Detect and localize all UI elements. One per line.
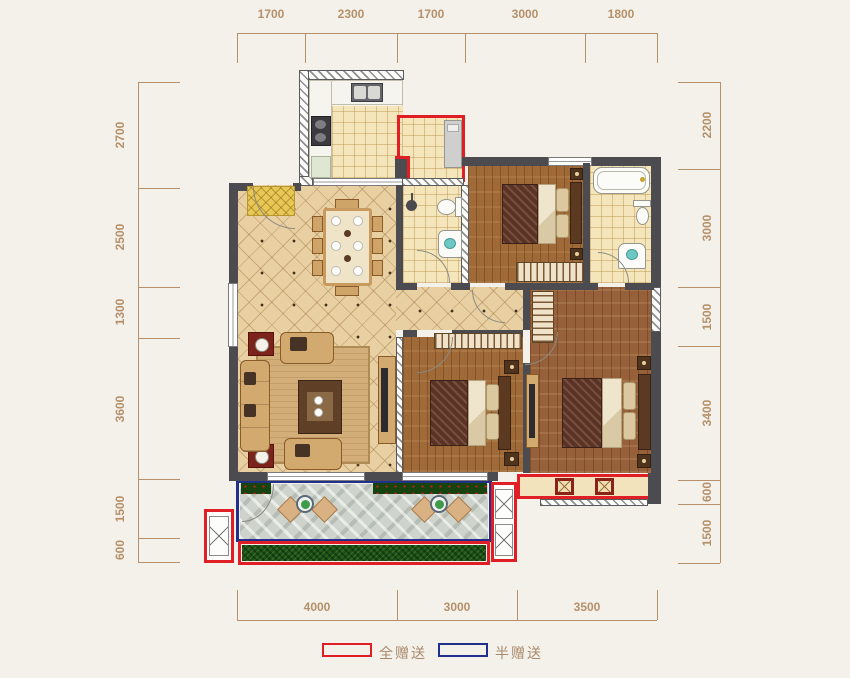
bay-window-sill	[540, 499, 648, 506]
bottom-wall-1	[229, 472, 267, 481]
dim-label: 1300	[113, 282, 127, 342]
gift-area-wall	[402, 178, 464, 186]
kitchen-slider-door	[313, 178, 403, 186]
planter-plant	[435, 500, 444, 509]
dim-tick	[138, 538, 180, 539]
balcony-slider-2	[402, 472, 488, 481]
bed-headboard	[570, 182, 582, 244]
sofa-pillow	[244, 372, 256, 385]
shower-hose	[411, 193, 413, 203]
kitchen-tile	[332, 106, 403, 178]
sink-basin	[368, 86, 380, 99]
toilet-icon	[437, 199, 456, 215]
corner-post	[648, 473, 661, 504]
ac-platform-icon	[495, 524, 513, 556]
plate	[331, 266, 341, 276]
dim-tick	[397, 33, 398, 63]
armchair-cushion	[290, 337, 307, 351]
stove-burner	[315, 133, 326, 142]
washing-machine-panel	[447, 124, 459, 132]
legend-label-full-gift: 全赠送	[379, 643, 427, 663]
dim-label: 1800	[591, 7, 651, 21]
bed-pillow	[556, 188, 569, 212]
dim-label: 2200	[700, 95, 714, 155]
dining-chair	[335, 286, 359, 296]
dim-tick	[657, 590, 658, 620]
dim-label: 1500	[700, 503, 714, 563]
dim-tick	[657, 33, 658, 63]
cutting-board	[311, 156, 331, 178]
basin-bowl	[444, 238, 456, 249]
dining-chair	[372, 238, 383, 254]
nightstand-icon	[504, 360, 519, 374]
hallway-wall-1	[396, 283, 417, 290]
tv-icon	[381, 368, 388, 432]
dim-tick	[138, 82, 180, 83]
dim-label: 3000	[427, 600, 487, 614]
centerpiece	[344, 230, 351, 237]
plate	[353, 266, 363, 276]
dining-chair	[372, 260, 383, 276]
loveseat-cushion	[295, 444, 310, 457]
dim-tick	[305, 33, 306, 63]
dim-label: 2500	[113, 207, 127, 267]
bay-window-stool-icon	[555, 478, 574, 495]
toilet-tank	[455, 197, 462, 217]
kitchen-wall-top	[299, 70, 404, 80]
dim-label: 1700	[401, 7, 461, 21]
plate	[331, 216, 341, 226]
dim-tick	[517, 590, 518, 620]
planter-plant	[301, 500, 310, 509]
dim-tick	[138, 562, 180, 563]
ac-platform-icon	[495, 489, 513, 519]
living-window-left	[228, 283, 238, 347]
armchair-icon	[280, 332, 334, 364]
dining-chair	[312, 260, 323, 276]
nightstand-icon	[637, 356, 651, 370]
tv-icon	[529, 384, 535, 438]
dim-tick	[397, 590, 398, 620]
dim-tick	[585, 33, 586, 63]
nightstand-icon	[637, 454, 651, 468]
bath-wall-left	[396, 185, 403, 287]
hallway-wall-2	[451, 283, 470, 290]
double-bed-icon	[430, 380, 468, 446]
dim-tick	[138, 188, 180, 189]
double-bed-icon	[502, 184, 538, 244]
dim-line	[237, 620, 657, 621]
dim-line	[720, 82, 721, 563]
table-item	[314, 408, 323, 417]
stove-burner	[315, 120, 326, 129]
dim-label: 1500	[700, 287, 714, 347]
legend-swatch-half-gift	[438, 643, 488, 657]
dim-tick	[678, 563, 720, 564]
hallway-wall-3	[505, 283, 598, 290]
midbed-wall-left	[396, 337, 403, 473]
double-bed-icon	[562, 378, 602, 448]
bath-wall-right	[461, 185, 469, 285]
bed-pillow	[486, 413, 499, 440]
hedge-icon	[373, 483, 487, 494]
nightstand-icon	[504, 452, 519, 466]
grass-strip-icon	[242, 545, 486, 561]
legend: 全赠送 半赠送	[320, 638, 580, 662]
dim-label: 3400	[700, 383, 714, 443]
dim-label: 4000	[287, 600, 347, 614]
dim-tick	[465, 33, 466, 63]
kitchen-wall-left	[299, 70, 309, 184]
bed-sheet	[538, 184, 556, 244]
dim-tick	[678, 169, 720, 170]
dim-tick	[138, 338, 180, 339]
sink-basin	[354, 86, 366, 99]
bed-pillow	[556, 214, 569, 238]
wardrobe-icon	[516, 262, 584, 282]
dim-label: 2700	[113, 105, 127, 165]
bay-window-stool-icon	[595, 478, 614, 495]
hallway-wall-4	[625, 283, 654, 290]
dining-chair	[312, 238, 323, 254]
dim-line	[138, 82, 139, 562]
sofa-pillow	[244, 404, 256, 417]
toilet-icon	[636, 207, 649, 225]
dim-label: 1700	[241, 7, 301, 21]
bed-sheet	[602, 378, 622, 448]
dining-chair	[312, 216, 323, 232]
bed-headboard	[638, 374, 651, 450]
plate	[353, 216, 363, 226]
dim-tick	[237, 33, 238, 63]
dim-line	[237, 33, 657, 34]
legend-swatch-full-gift	[322, 643, 372, 657]
table-item	[314, 396, 323, 405]
loveseat-icon	[284, 438, 342, 470]
dim-tick	[138, 287, 180, 288]
plate	[331, 241, 341, 251]
dim-label: 3000	[700, 198, 714, 258]
toilet-tank	[633, 200, 651, 207]
floorplan-page: 17002300170030001800 2700250013003600150…	[0, 0, 850, 678]
master-window-right	[651, 287, 661, 332]
plate	[353, 241, 363, 251]
side-table-lamp	[248, 332, 274, 356]
bed3-bath-divider	[583, 163, 590, 285]
master-wall-upper	[523, 287, 530, 330]
nightstand-icon	[570, 248, 583, 260]
legend-label-half-gift: 半赠送	[495, 643, 543, 663]
dim-label: 3000	[495, 7, 555, 21]
balcony-slider-1	[267, 472, 365, 481]
dim-label: 3500	[557, 600, 617, 614]
bed-pillow	[623, 382, 636, 410]
basin-bowl	[626, 249, 638, 260]
bay-window-gift	[517, 474, 651, 499]
dining-chair	[372, 216, 383, 232]
dim-tick	[678, 82, 720, 83]
midbed-wall-top1	[403, 330, 417, 337]
nightstand-icon	[570, 168, 583, 180]
bathtub-inner	[597, 171, 646, 190]
ac-platform-icon	[209, 516, 229, 556]
centerpiece	[344, 255, 351, 262]
bottom-wall-3	[488, 472, 498, 481]
dim-label: 2300	[321, 7, 381, 21]
dim-tick	[138, 479, 180, 480]
bottom-wall-2	[365, 472, 402, 481]
bed-pillow	[623, 412, 636, 440]
bed-pillow	[486, 384, 499, 411]
bed-headboard	[498, 376, 511, 450]
dim-label: 600	[113, 520, 127, 580]
bathtub-faucet	[640, 177, 645, 182]
bed-sheet	[468, 380, 486, 446]
dim-tick	[237, 590, 238, 620]
dim-label: 3600	[113, 379, 127, 439]
